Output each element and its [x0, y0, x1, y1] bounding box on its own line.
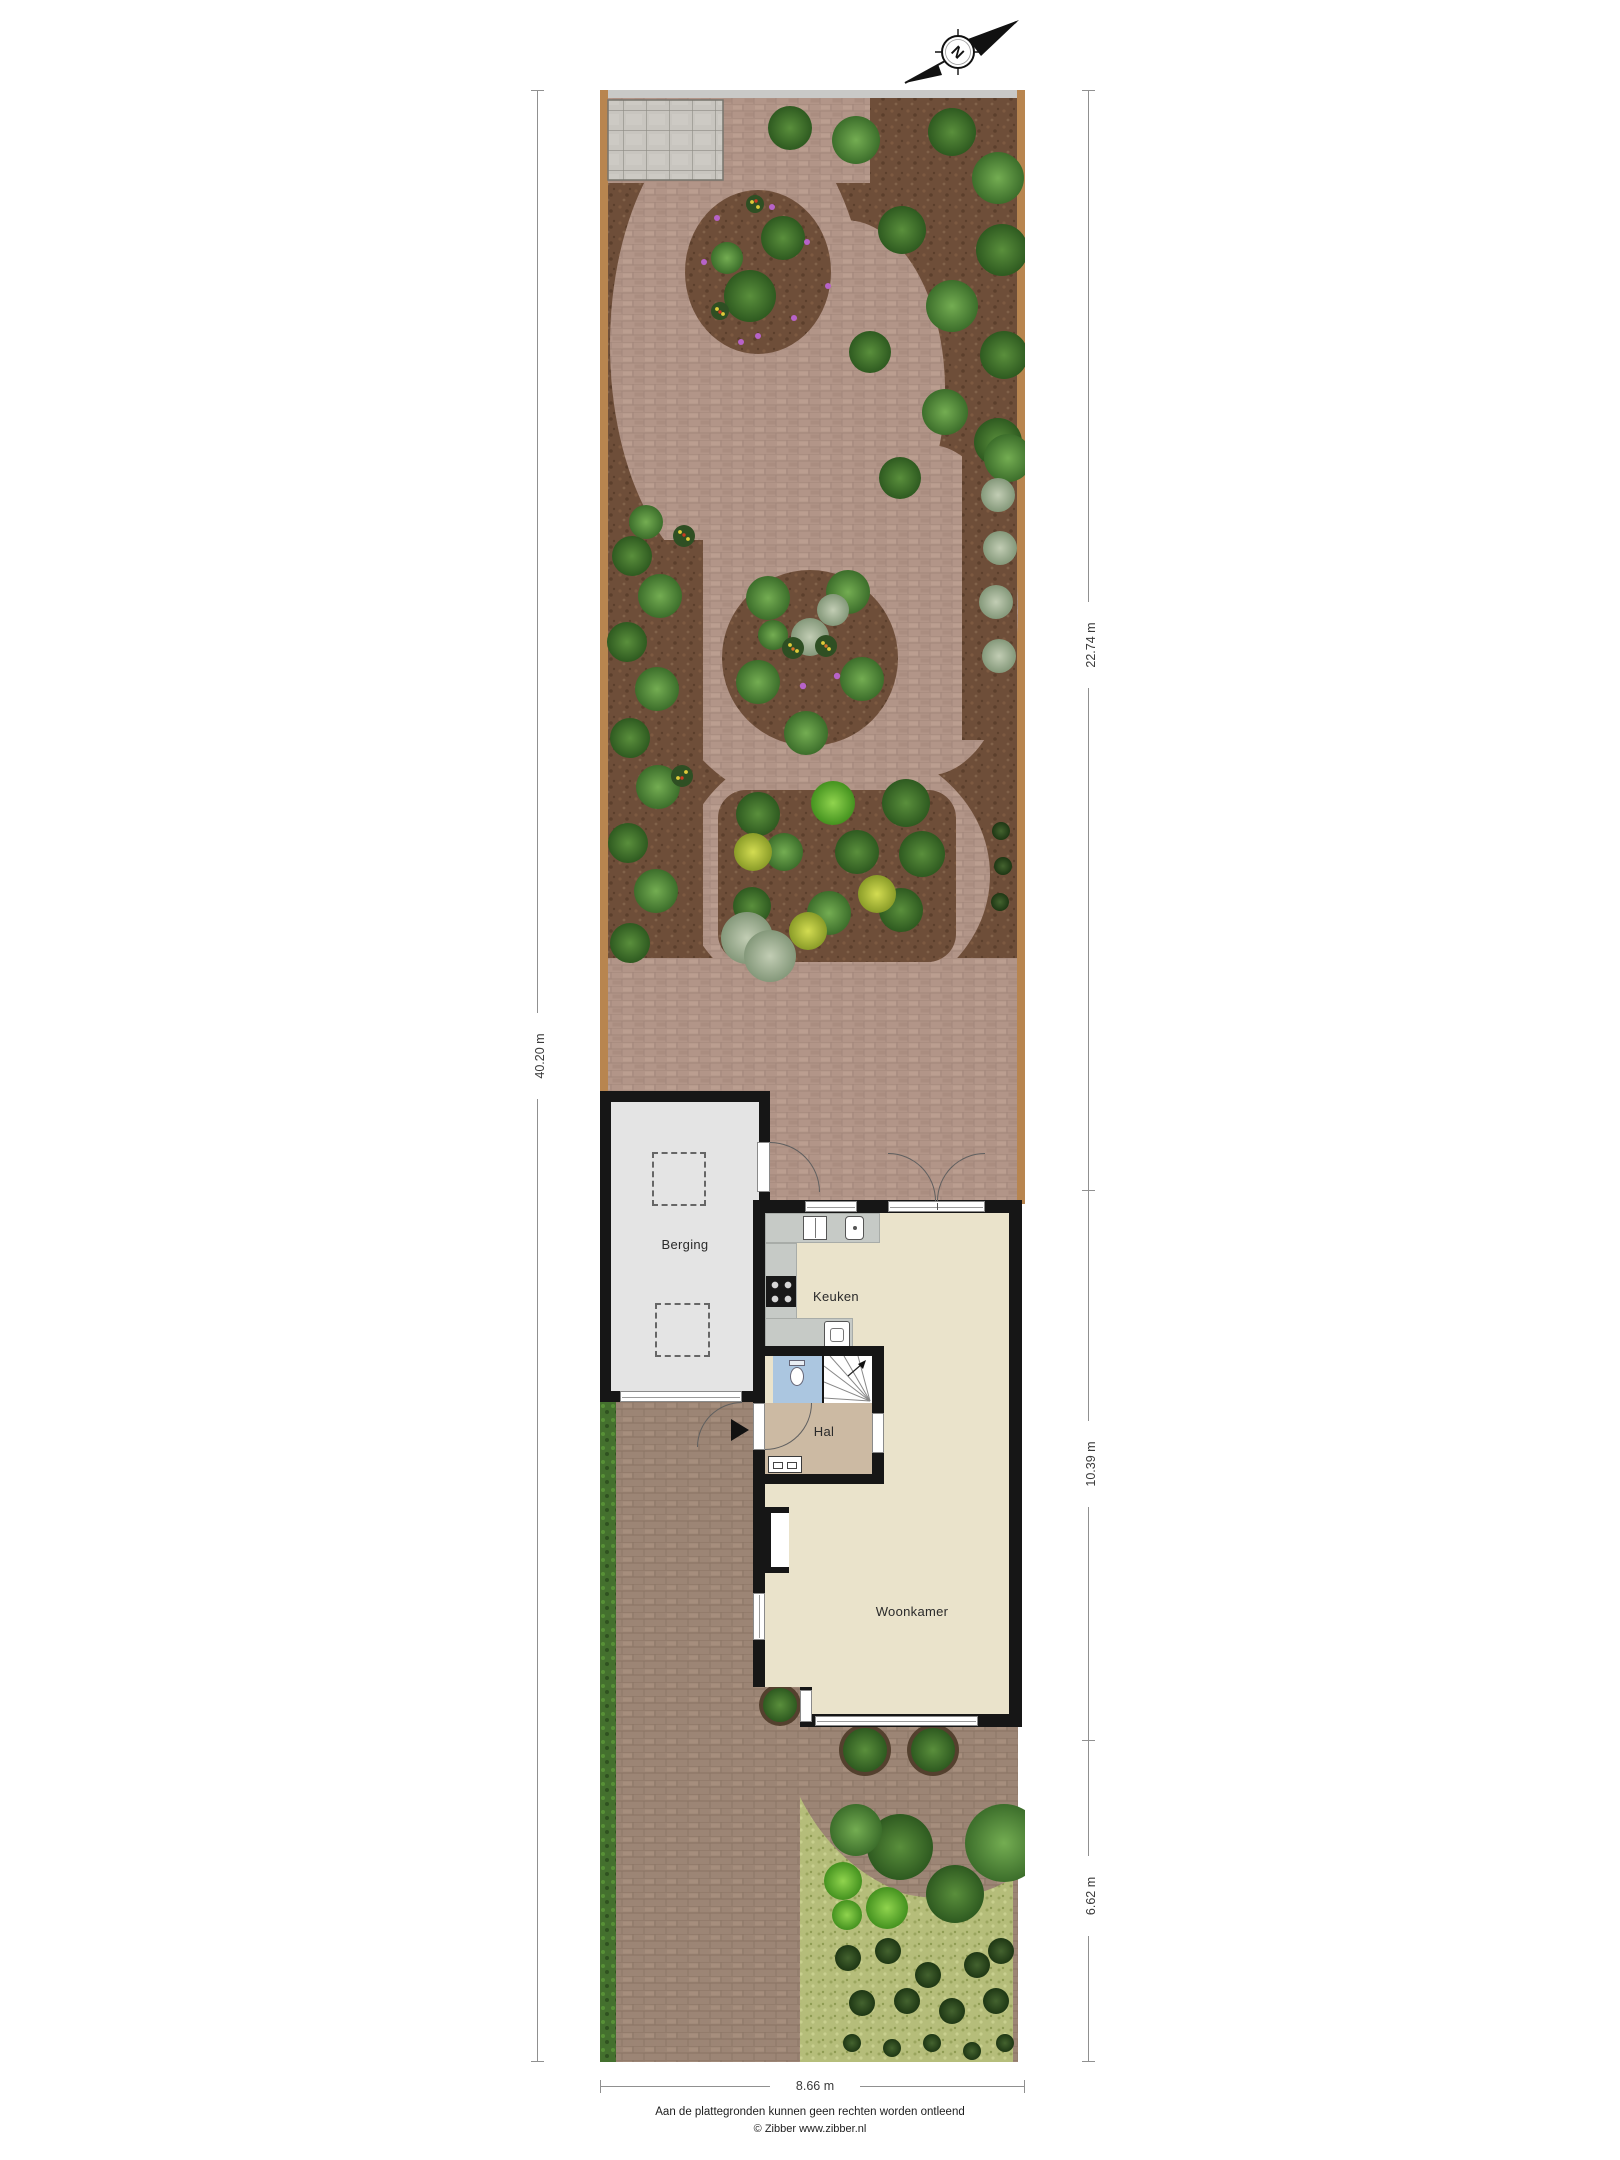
- toilet-bowl-icon: [790, 1367, 804, 1386]
- dimension-plot-width: 8.66 m: [770, 2078, 860, 2094]
- stove-icon: [766, 1276, 796, 1307]
- garden-patio: [608, 100, 723, 180]
- kitchen-window: [805, 1201, 857, 1212]
- dim-tick: [1082, 1740, 1095, 1741]
- dim-tick: [531, 90, 544, 91]
- compass-icon: N: [880, 5, 1040, 95]
- dimension-line-right: [1088, 90, 1089, 2062]
- dim-tick: [1082, 1190, 1095, 1191]
- garden-top-fence: [608, 90, 1017, 98]
- hal-living-door-opening: [872, 1413, 884, 1453]
- dimension-house-depth: 10.39 m: [1083, 1421, 1099, 1507]
- staircase-treads: [824, 1356, 872, 1403]
- berging-front-window: [620, 1391, 742, 1402]
- wall-stairs-right: [872, 1346, 884, 1413]
- garden-border-left: [600, 90, 608, 1204]
- living-front-window: [815, 1716, 978, 1726]
- dim-tick: [600, 2080, 601, 2093]
- garden-double-door: [888, 1201, 985, 1212]
- dim-tick: [1082, 2061, 1095, 2062]
- wall-hal-bottom: [765, 1474, 884, 1484]
- dimension-garden-depth: 22.74 m: [1083, 602, 1099, 688]
- toilet-tank-icon: [789, 1360, 805, 1366]
- meter-cupboard: [768, 1456, 802, 1473]
- hedge: [600, 1402, 616, 2062]
- fridge-icon: [803, 1216, 827, 1240]
- footer-disclaimer: Aan de plattegronden kunnen geen rechten…: [0, 2106, 1620, 2118]
- house-wall-right: [1009, 1200, 1022, 1727]
- floorplan-canvas: N: [0, 0, 1620, 2160]
- dimension-plot-length: 40.20 m: [532, 1013, 548, 1099]
- berging-label: Berging: [625, 1237, 745, 1252]
- dim-tick: [1024, 2080, 1025, 2093]
- staircase: [824, 1356, 872, 1403]
- sink-icon: [845, 1216, 864, 1240]
- front-door: [753, 1403, 765, 1450]
- dim-tick: [531, 2061, 544, 2062]
- living-side-window: [753, 1593, 765, 1640]
- dimension-front-depth: 6.62 m: [1083, 1856, 1099, 1936]
- berging-garden-door: [757, 1142, 770, 1192]
- dishwasher-icon: [824, 1321, 850, 1349]
- living-floor-lower: [812, 1687, 1009, 1714]
- chimney-niche: [771, 1513, 789, 1567]
- back-garden: [600, 90, 1025, 1204]
- entrance-arrow-icon: [731, 1419, 749, 1441]
- side-door: [800, 1690, 812, 1722]
- keuken-label: Keuken: [796, 1289, 876, 1304]
- woonkamer-label: Woonkamer: [852, 1604, 972, 1619]
- footer-credit: © Zibber www.zibber.nl: [0, 2123, 1620, 2135]
- berging-skylight-1: [652, 1152, 706, 1206]
- berging-skylight-2: [655, 1303, 710, 1357]
- dim-tick: [1082, 90, 1095, 91]
- wall-kitchen-hall: [765, 1346, 880, 1356]
